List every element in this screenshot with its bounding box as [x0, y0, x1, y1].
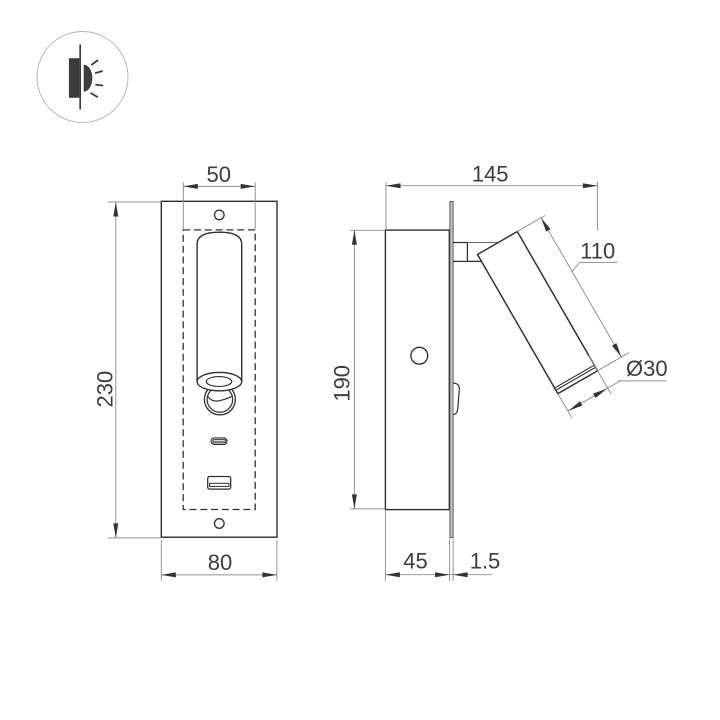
svg-text:230: 230 — [92, 371, 117, 408]
svg-text:190: 190 — [329, 365, 354, 402]
svg-text:50: 50 — [207, 162, 231, 187]
svg-text:110: 110 — [580, 238, 615, 263]
svg-text:145: 145 — [472, 162, 509, 187]
svg-text:80: 80 — [208, 550, 232, 575]
svg-text:1.5: 1.5 — [470, 549, 501, 574]
svg-text:45: 45 — [403, 549, 427, 574]
svg-text:Ø30: Ø30 — [626, 356, 668, 381]
